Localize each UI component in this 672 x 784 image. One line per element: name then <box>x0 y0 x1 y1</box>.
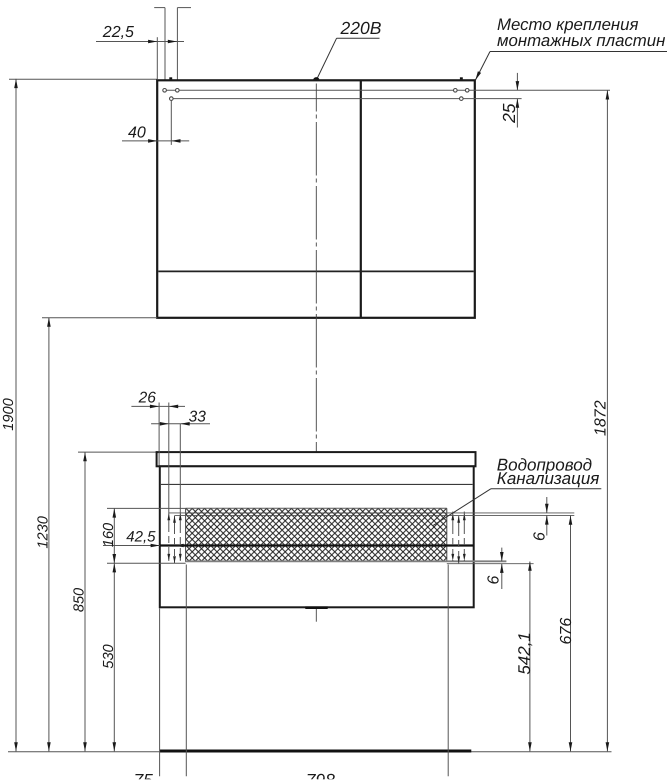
svg-text:1230: 1230 <box>36 516 52 548</box>
svg-text:676: 676 <box>558 618 575 645</box>
svg-text:530: 530 <box>101 644 117 668</box>
svg-text:22,5: 22,5 <box>102 24 134 41</box>
svg-text:1872: 1872 <box>593 400 610 436</box>
svg-text:26: 26 <box>138 390 157 407</box>
svg-text:1900: 1900 <box>1 398 17 430</box>
svg-text:40: 40 <box>128 125 146 142</box>
svg-text:6: 6 <box>531 532 548 541</box>
svg-text:Канализация: Канализация <box>497 469 600 488</box>
svg-text:монтажных пластин: монтажных пластин <box>497 31 665 50</box>
svg-text:6: 6 <box>485 575 502 584</box>
svg-text:25: 25 <box>499 103 519 124</box>
svg-text:542,1: 542,1 <box>515 632 534 675</box>
svg-text:42,5: 42,5 <box>126 529 156 546</box>
svg-text:160: 160 <box>101 523 117 547</box>
svg-text:850: 850 <box>72 588 88 612</box>
svg-text:33: 33 <box>189 408 207 425</box>
svg-text:220В: 220В <box>340 18 382 38</box>
